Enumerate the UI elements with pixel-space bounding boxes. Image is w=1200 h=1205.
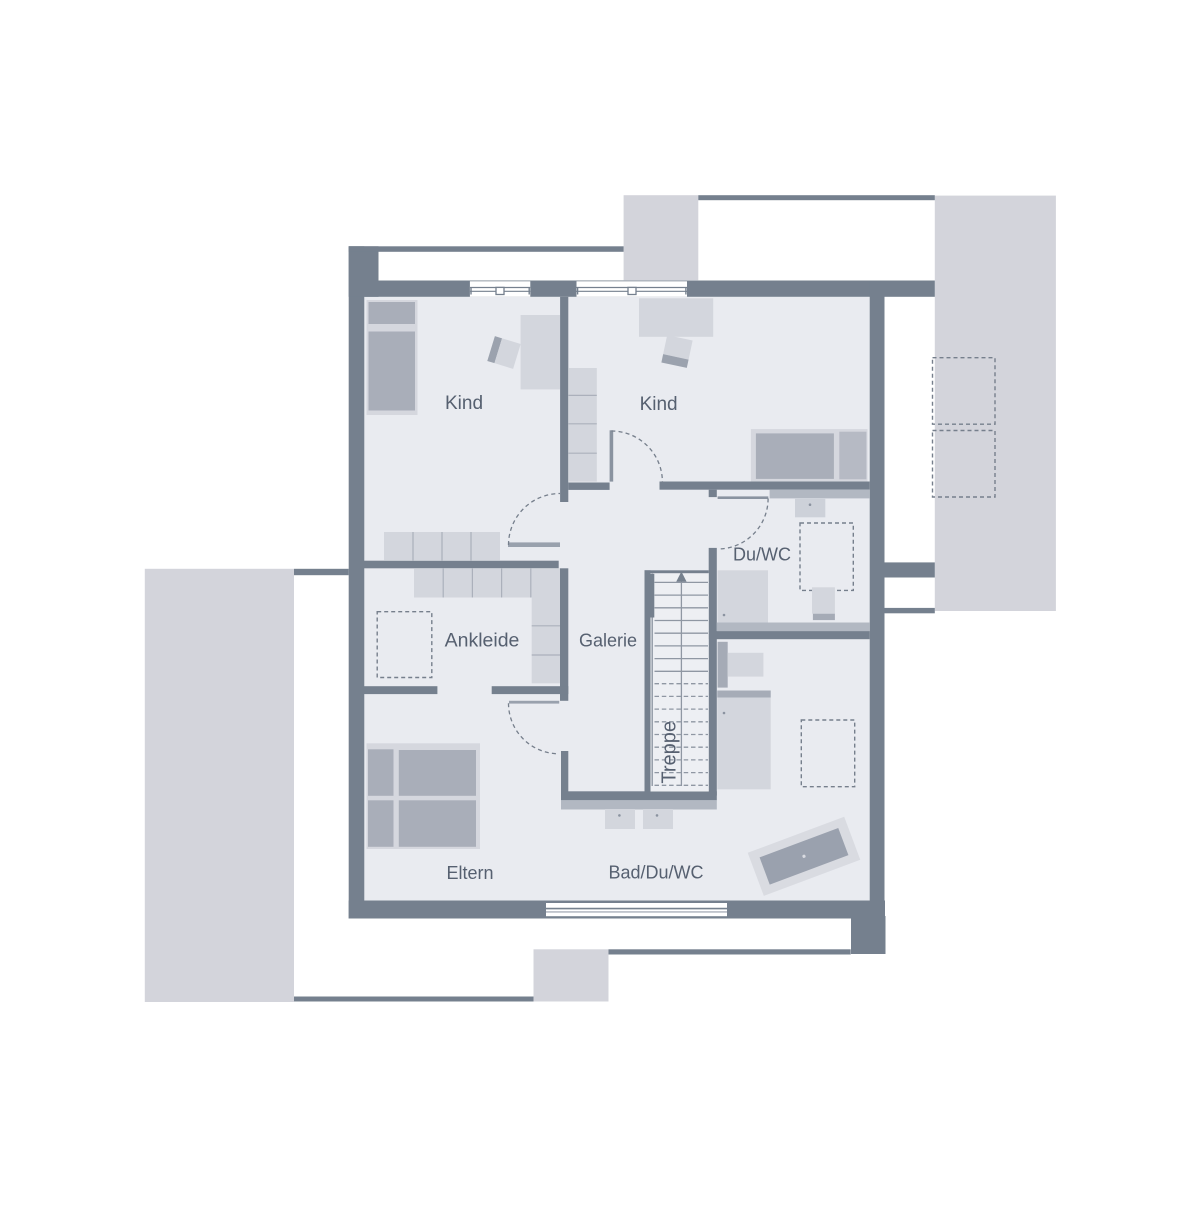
svg-text:Galerie: Galerie xyxy=(579,631,637,651)
svg-text:Treppe: Treppe xyxy=(659,721,681,784)
svg-text:Bad/Du/WC: Bad/Du/WC xyxy=(608,863,703,883)
svg-text:Kind: Kind xyxy=(640,394,678,415)
svg-text:Kind: Kind xyxy=(445,393,483,414)
svg-text:Eltern: Eltern xyxy=(446,863,493,883)
svg-text:Ankleide: Ankleide xyxy=(445,630,520,652)
svg-text:Du/WC: Du/WC xyxy=(733,545,791,565)
